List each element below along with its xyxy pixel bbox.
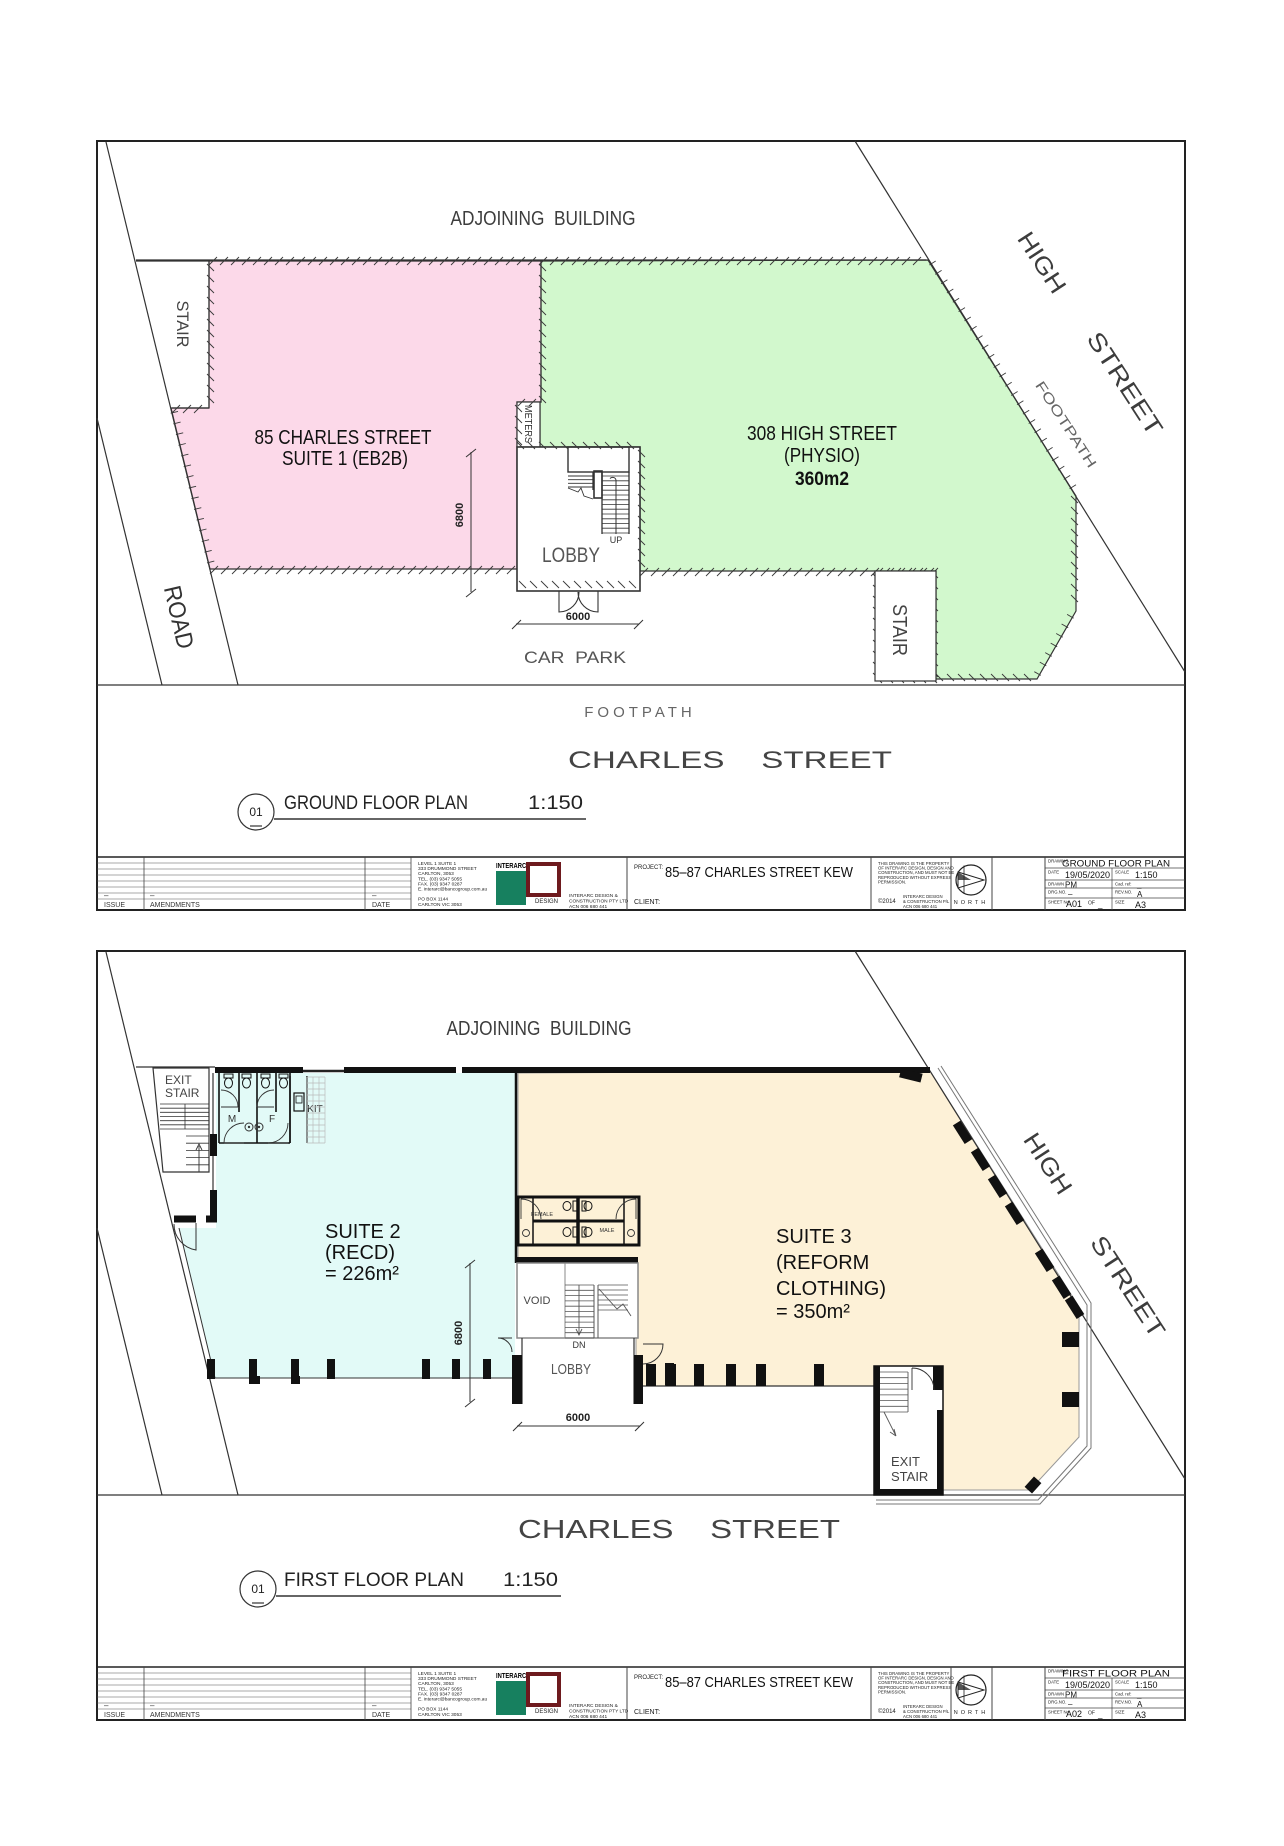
svg-text:= 350m²: = 350m² <box>776 1301 850 1323</box>
svg-text:Cad. ref:: Cad. ref: <box>1115 1692 1131 1697</box>
svg-text:6000: 6000 <box>566 1412 590 1424</box>
svg-text:DATE: DATE <box>372 902 390 909</box>
svg-text:ACN 006 680 441: ACN 006 680 441 <box>569 904 607 910</box>
svg-text:FAX. (03) 9347 0287: FAX. (03) 9347 0287 <box>418 1691 463 1697</box>
svg-text:ACN 006 680 441: ACN 006 680 441 <box>903 1714 938 1719</box>
svg-text:SUITE 1 (EB2B): SUITE 1 (EB2B) <box>282 448 408 470</box>
svg-text:DATE: DATE <box>372 1712 390 1719</box>
svg-text:INTERARC DESIGN &: INTERARC DESIGN & <box>569 1703 619 1709</box>
svg-text:DATE: DATE <box>1048 870 1059 875</box>
svg-text:85–87 CHARLES STREET KEW: 85–87 CHARLES STREET KEW <box>665 864 854 881</box>
svg-text:DATE: DATE <box>1048 1680 1059 1685</box>
svg-text:SIZE: SIZE <box>1115 1710 1125 1715</box>
svg-text:1:150: 1:150 <box>503 1570 558 1591</box>
svg-text:–: – <box>104 891 109 900</box>
svg-text:DESIGN: DESIGN <box>535 899 558 905</box>
svg-text:308 HIGH STREET: 308 HIGH STREET <box>747 423 897 445</box>
svg-text:REV.NO.: REV.NO. <box>1115 1700 1132 1705</box>
svg-text:1:150: 1:150 <box>1135 870 1158 880</box>
svg-text:CARLTON, 3053: CARLTON, 3053 <box>418 1681 454 1687</box>
svg-text:LEVEL 1 SUITE 1: LEVEL 1 SUITE 1 <box>418 861 457 867</box>
svg-text:TEL. (03) 9347 5055: TEL. (03) 9347 5055 <box>418 1686 462 1692</box>
svg-text:85–87 CHARLES STREET KEW: 85–87 CHARLES STREET KEW <box>665 1674 854 1691</box>
svg-text:ACN 006 680 441: ACN 006 680 441 <box>903 904 938 909</box>
svg-text:E. interarc@bancogroup.com.au: E. interarc@bancogroup.com.au <box>418 887 487 893</box>
svg-text:INTERARC: INTERARC <box>496 862 526 870</box>
svg-text:A3: A3 <box>1135 1710 1146 1720</box>
svg-text:REV.NO.: REV.NO. <box>1115 890 1132 895</box>
svg-text:1:150: 1:150 <box>528 793 583 814</box>
svg-text:SUITE 2: SUITE 2 <box>325 1221 401 1243</box>
svg-text:333 DRUMMOND STREET: 333 DRUMMOND STREET <box>418 866 477 872</box>
svg-text:CONSTRUCTION PTY LTD: CONSTRUCTION PTY LTD <box>569 1709 629 1715</box>
svg-text:STAIR: STAIR <box>165 1086 200 1100</box>
svg-text:_: _ <box>1136 880 1142 889</box>
svg-text:CARLTON VIC 3053: CARLTON VIC 3053 <box>418 1712 462 1718</box>
svg-text:SCALE: SCALE <box>1115 870 1129 875</box>
svg-text:DRAWN: DRAWN <box>1048 1692 1064 1697</box>
svg-text:STAIR: STAIR <box>888 604 910 656</box>
svg-text:UP: UP <box>610 535 623 545</box>
svg-text:(RECD): (RECD) <box>325 1242 395 1264</box>
svg-text:19/05/2020: 19/05/2020 <box>1065 870 1110 880</box>
svg-text:HIGH: HIGH <box>1017 1128 1077 1200</box>
svg-text:1:150: 1:150 <box>1135 1680 1158 1690</box>
svg-text:AMENDMENTS: AMENDMENTS <box>150 902 200 909</box>
svg-text:CARLTON VIC 3053: CARLTON VIC 3053 <box>418 902 462 908</box>
svg-text:ISSUE: ISSUE <box>104 902 125 909</box>
svg-text:STREET: STREET <box>1084 1231 1170 1343</box>
svg-text:LEVEL 1 SUITE 1: LEVEL 1 SUITE 1 <box>418 1671 457 1677</box>
svg-text:AMENDMENTS: AMENDMENTS <box>150 1712 200 1719</box>
svg-text:6800: 6800 <box>453 1321 465 1345</box>
svg-text:A: A <box>1137 1700 1143 1709</box>
svg-text:_: _ <box>1097 1710 1103 1719</box>
svg-text:OF: OF <box>1088 1711 1095 1717</box>
svg-text:PM: PM <box>1065 1691 1077 1700</box>
svg-text:6000: 6000 <box>566 611 590 623</box>
svg-text:360m2: 360m2 <box>795 469 849 490</box>
svg-text:ADJOINING BUILDING: ADJOINING BUILDING <box>451 208 636 230</box>
svg-text:PM: PM <box>1065 881 1077 890</box>
svg-text:PO BOX 1144: PO BOX 1144 <box>418 897 448 903</box>
svg-text:DRG.NO.: DRG.NO. <box>1048 890 1066 895</box>
svg-text:©2014: ©2014 <box>878 898 896 905</box>
svg-text:INTERARC DESIGN &: INTERARC DESIGN & <box>569 893 619 899</box>
svg-text:ACN 006 680 441: ACN 006 680 441 <box>569 1714 607 1720</box>
svg-text:PO BOX 1144: PO BOX 1144 <box>418 1707 448 1713</box>
svg-text:DRAWN: DRAWN <box>1048 882 1064 887</box>
svg-text:LOBBY: LOBBY <box>551 1361 591 1378</box>
svg-text:CLIENT:: CLIENT: <box>634 899 660 906</box>
svg-text:FOOTPATH: FOOTPATH <box>584 704 695 721</box>
svg-text:©2014: ©2014 <box>878 1708 896 1715</box>
svg-text:GROUND FLOOR PLAN: GROUND FLOOR PLAN <box>284 793 468 814</box>
svg-text:STAIR: STAIR <box>173 301 192 348</box>
svg-text:METERS: METERS <box>522 405 533 443</box>
svg-text:MALE: MALE <box>600 1228 615 1234</box>
svg-text:TEL. (03) 9347 5055: TEL. (03) 9347 5055 <box>418 876 462 882</box>
svg-text:85 CHARLES STREET: 85 CHARLES STREET <box>255 427 432 449</box>
svg-text:6800: 6800 <box>454 503 466 527</box>
svg-text:LOBBY: LOBBY <box>542 544 600 567</box>
svg-text:–: – <box>150 1701 155 1710</box>
svg-text:A02: A02 <box>1066 1709 1082 1719</box>
svg-text:PERMISSION.: PERMISSION. <box>878 1689 906 1694</box>
svg-text:ADJOINING BUILDING: ADJOINING BUILDING <box>447 1018 632 1040</box>
svg-text:FEMALE: FEMALE <box>531 1212 553 1218</box>
svg-text:CARLTON, 3053: CARLTON, 3053 <box>418 871 454 877</box>
svg-text:CLOTHING): CLOTHING) <box>776 1278 886 1300</box>
svg-text:VOID: VOID <box>524 1295 551 1307</box>
svg-text:DRG.NO.: DRG.NO. <box>1048 1700 1066 1705</box>
svg-text:SCALE: SCALE <box>1115 1680 1129 1685</box>
svg-text:OF: OF <box>1088 901 1095 907</box>
svg-text:_: _ <box>1097 900 1103 909</box>
svg-text:HIGH: HIGH <box>1011 227 1071 299</box>
svg-text:–: – <box>104 1701 109 1710</box>
svg-text:EXIT: EXIT <box>891 1454 920 1469</box>
svg-text:NORTH: NORTH <box>954 900 988 906</box>
svg-text:–: – <box>372 1701 377 1710</box>
svg-text:Cad. ref:: Cad. ref: <box>1115 882 1131 887</box>
svg-text:–: – <box>150 891 155 900</box>
svg-text:–: – <box>1068 890 1073 899</box>
svg-text:A01: A01 <box>1066 899 1082 909</box>
svg-text:NORTH: NORTH <box>954 1710 988 1716</box>
svg-text:19/05/2020: 19/05/2020 <box>1065 1680 1110 1690</box>
svg-text:01: 01 <box>251 1582 265 1596</box>
svg-text:A: A <box>1137 890 1143 899</box>
svg-text:PROJECT:: PROJECT: <box>634 1675 663 1681</box>
svg-text:EXIT: EXIT <box>165 1073 192 1087</box>
svg-text:STREET: STREET <box>1081 327 1168 441</box>
svg-text:M: M <box>228 1114 236 1125</box>
svg-text:STAIR: STAIR <box>891 1469 928 1484</box>
svg-text:(PHYSIO): (PHYSIO) <box>784 445 860 467</box>
svg-text:CHARLES STREET: CHARLES STREET <box>518 1514 840 1544</box>
svg-text:SUITE 3: SUITE 3 <box>776 1226 852 1248</box>
svg-text:FIRST FLOOR PLAN: FIRST FLOOR PLAN <box>1062 1669 1170 1679</box>
svg-text:CAR PARK: CAR PARK <box>524 648 627 667</box>
svg-text:FAX. (03) 9347 0287: FAX. (03) 9347 0287 <box>418 881 463 887</box>
svg-text:E. interarc@bancogroup.com.au: E. interarc@bancogroup.com.au <box>418 1697 487 1703</box>
svg-text:SIZE: SIZE <box>1115 900 1125 905</box>
svg-text:= 226m²: = 226m² <box>325 1263 399 1285</box>
svg-text:333 DRUMMOND STREET: 333 DRUMMOND STREET <box>418 1676 477 1682</box>
svg-text:PROJECT:: PROJECT: <box>634 865 663 871</box>
svg-text:–: – <box>372 891 377 900</box>
svg-text:DN: DN <box>573 1340 586 1350</box>
svg-text:(REFORM: (REFORM <box>776 1252 869 1274</box>
svg-text:_: _ <box>1136 1690 1142 1699</box>
svg-text:01: 01 <box>249 805 263 819</box>
svg-text:CLIENT:: CLIENT: <box>634 1709 660 1716</box>
svg-text:F: F <box>269 1114 275 1125</box>
svg-text:GROUND FLOOR PLAN: GROUND FLOOR PLAN <box>1062 859 1170 869</box>
svg-text:PERMISSION.: PERMISSION. <box>878 879 906 884</box>
svg-text:ROAD: ROAD <box>158 583 199 651</box>
svg-text:–: – <box>1068 1700 1073 1709</box>
svg-text:INTERARC: INTERARC <box>496 1672 526 1680</box>
svg-text:ISSUE: ISSUE <box>104 1712 125 1719</box>
svg-text:CONSTRUCTION PTY LTD: CONSTRUCTION PTY LTD <box>569 899 629 905</box>
svg-text:A3: A3 <box>1135 900 1146 910</box>
svg-text:FIRST FLOOR PLAN: FIRST FLOOR PLAN <box>284 1570 464 1591</box>
svg-text:CHARLES STREET: CHARLES STREET <box>568 747 892 774</box>
svg-text:DESIGN: DESIGN <box>535 1709 558 1715</box>
